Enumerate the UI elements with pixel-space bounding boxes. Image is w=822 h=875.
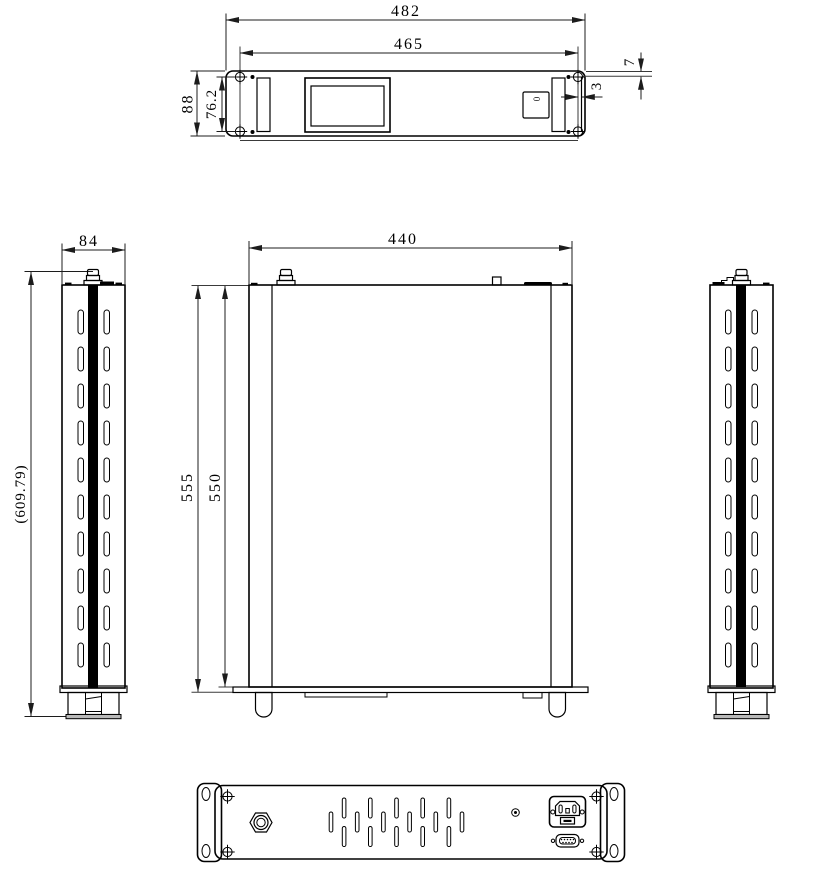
- screw-icon: [571, 70, 585, 84]
- dim-label-440: 440: [388, 231, 418, 248]
- top-cap-segment: [524, 282, 552, 285]
- drawing-canvas: 482 465: [0, 0, 822, 875]
- screw-icon: [220, 789, 234, 803]
- dim-465: 465: [240, 36, 578, 136]
- front-panel: [226, 71, 585, 136]
- cable-gland-icon: [277, 270, 295, 286]
- top-cap-segment: [713, 282, 725, 285]
- edge-tick: [563, 283, 569, 285]
- left-mount-slot: [251, 75, 271, 134]
- edge-tick: [116, 283, 123, 285]
- side-handle-stripe: [736, 285, 746, 687]
- dim-76-2: 76.2: [204, 77, 237, 132]
- side-handle-stripe: [88, 285, 98, 688]
- center-view: 440 555 550: [179, 231, 588, 717]
- edge-tick: [65, 283, 72, 285]
- power-switch-label: 0: [532, 97, 542, 102]
- screw-icon: [589, 789, 603, 803]
- side-view-left: 84 (609.79): [13, 233, 127, 719]
- hex-nut-connector: [250, 813, 272, 832]
- side-vent-column: [104, 310, 110, 667]
- power-switch[interactable]: 0: [523, 92, 549, 118]
- foot-leg: [549, 693, 566, 718]
- top-tab: [493, 277, 502, 285]
- rear-vent-slots: [329, 798, 464, 847]
- side-foot: [708, 686, 775, 719]
- edge-tick: [251, 283, 258, 285]
- side-vent-column: [78, 310, 84, 667]
- display-window: [305, 78, 390, 132]
- power-inlet-icon[interactable]: [550, 797, 586, 828]
- dim-label-555: 555: [179, 472, 196, 502]
- screw-icon: [220, 845, 234, 859]
- dim-84: 84: [62, 233, 125, 284]
- foot-leg: [256, 693, 273, 717]
- indicator-led: [512, 809, 520, 817]
- dim-label-7: 7: [622, 58, 638, 67]
- side-vent-column: [752, 310, 758, 667]
- dim-609-79: (609.79): [13, 272, 93, 717]
- rack-ear-right: [601, 784, 625, 862]
- right-mount-slot: [552, 75, 571, 134]
- dim-label-3: 3: [589, 82, 605, 91]
- cable-gland-icon: [733, 270, 751, 286]
- bottom-flange: [233, 687, 588, 693]
- side-view-right: [708, 270, 775, 719]
- side-foot: [60, 686, 127, 719]
- dim-550: 550: [207, 286, 233, 687]
- dim-label-609-79: (609.79): [13, 464, 29, 523]
- flange-slot: [305, 693, 387, 698]
- dim-label-76-2: 76.2: [204, 89, 220, 119]
- engineering-drawing-sheet: 482 465: [0, 0, 822, 875]
- dim-label-550: 550: [207, 472, 224, 502]
- dim-label-84: 84: [79, 233, 99, 250]
- center-body: [249, 285, 572, 687]
- flange-tab: [523, 693, 542, 699]
- edge-tick: [763, 283, 770, 285]
- dim-label-465: 465: [394, 36, 424, 53]
- dim-3: 3: [561, 82, 605, 97]
- dim-7: 7: [583, 53, 652, 100]
- serial-port-icon[interactable]: [551, 835, 583, 848]
- dim-440: 440: [249, 231, 572, 284]
- rack-ear-left: [198, 784, 222, 862]
- dim-label-88: 88: [180, 94, 197, 114]
- side-vent-column: [726, 310, 732, 667]
- front-view: 482 465: [180, 3, 653, 141]
- rear-view: [198, 784, 625, 862]
- dim-label-482: 482: [391, 3, 421, 20]
